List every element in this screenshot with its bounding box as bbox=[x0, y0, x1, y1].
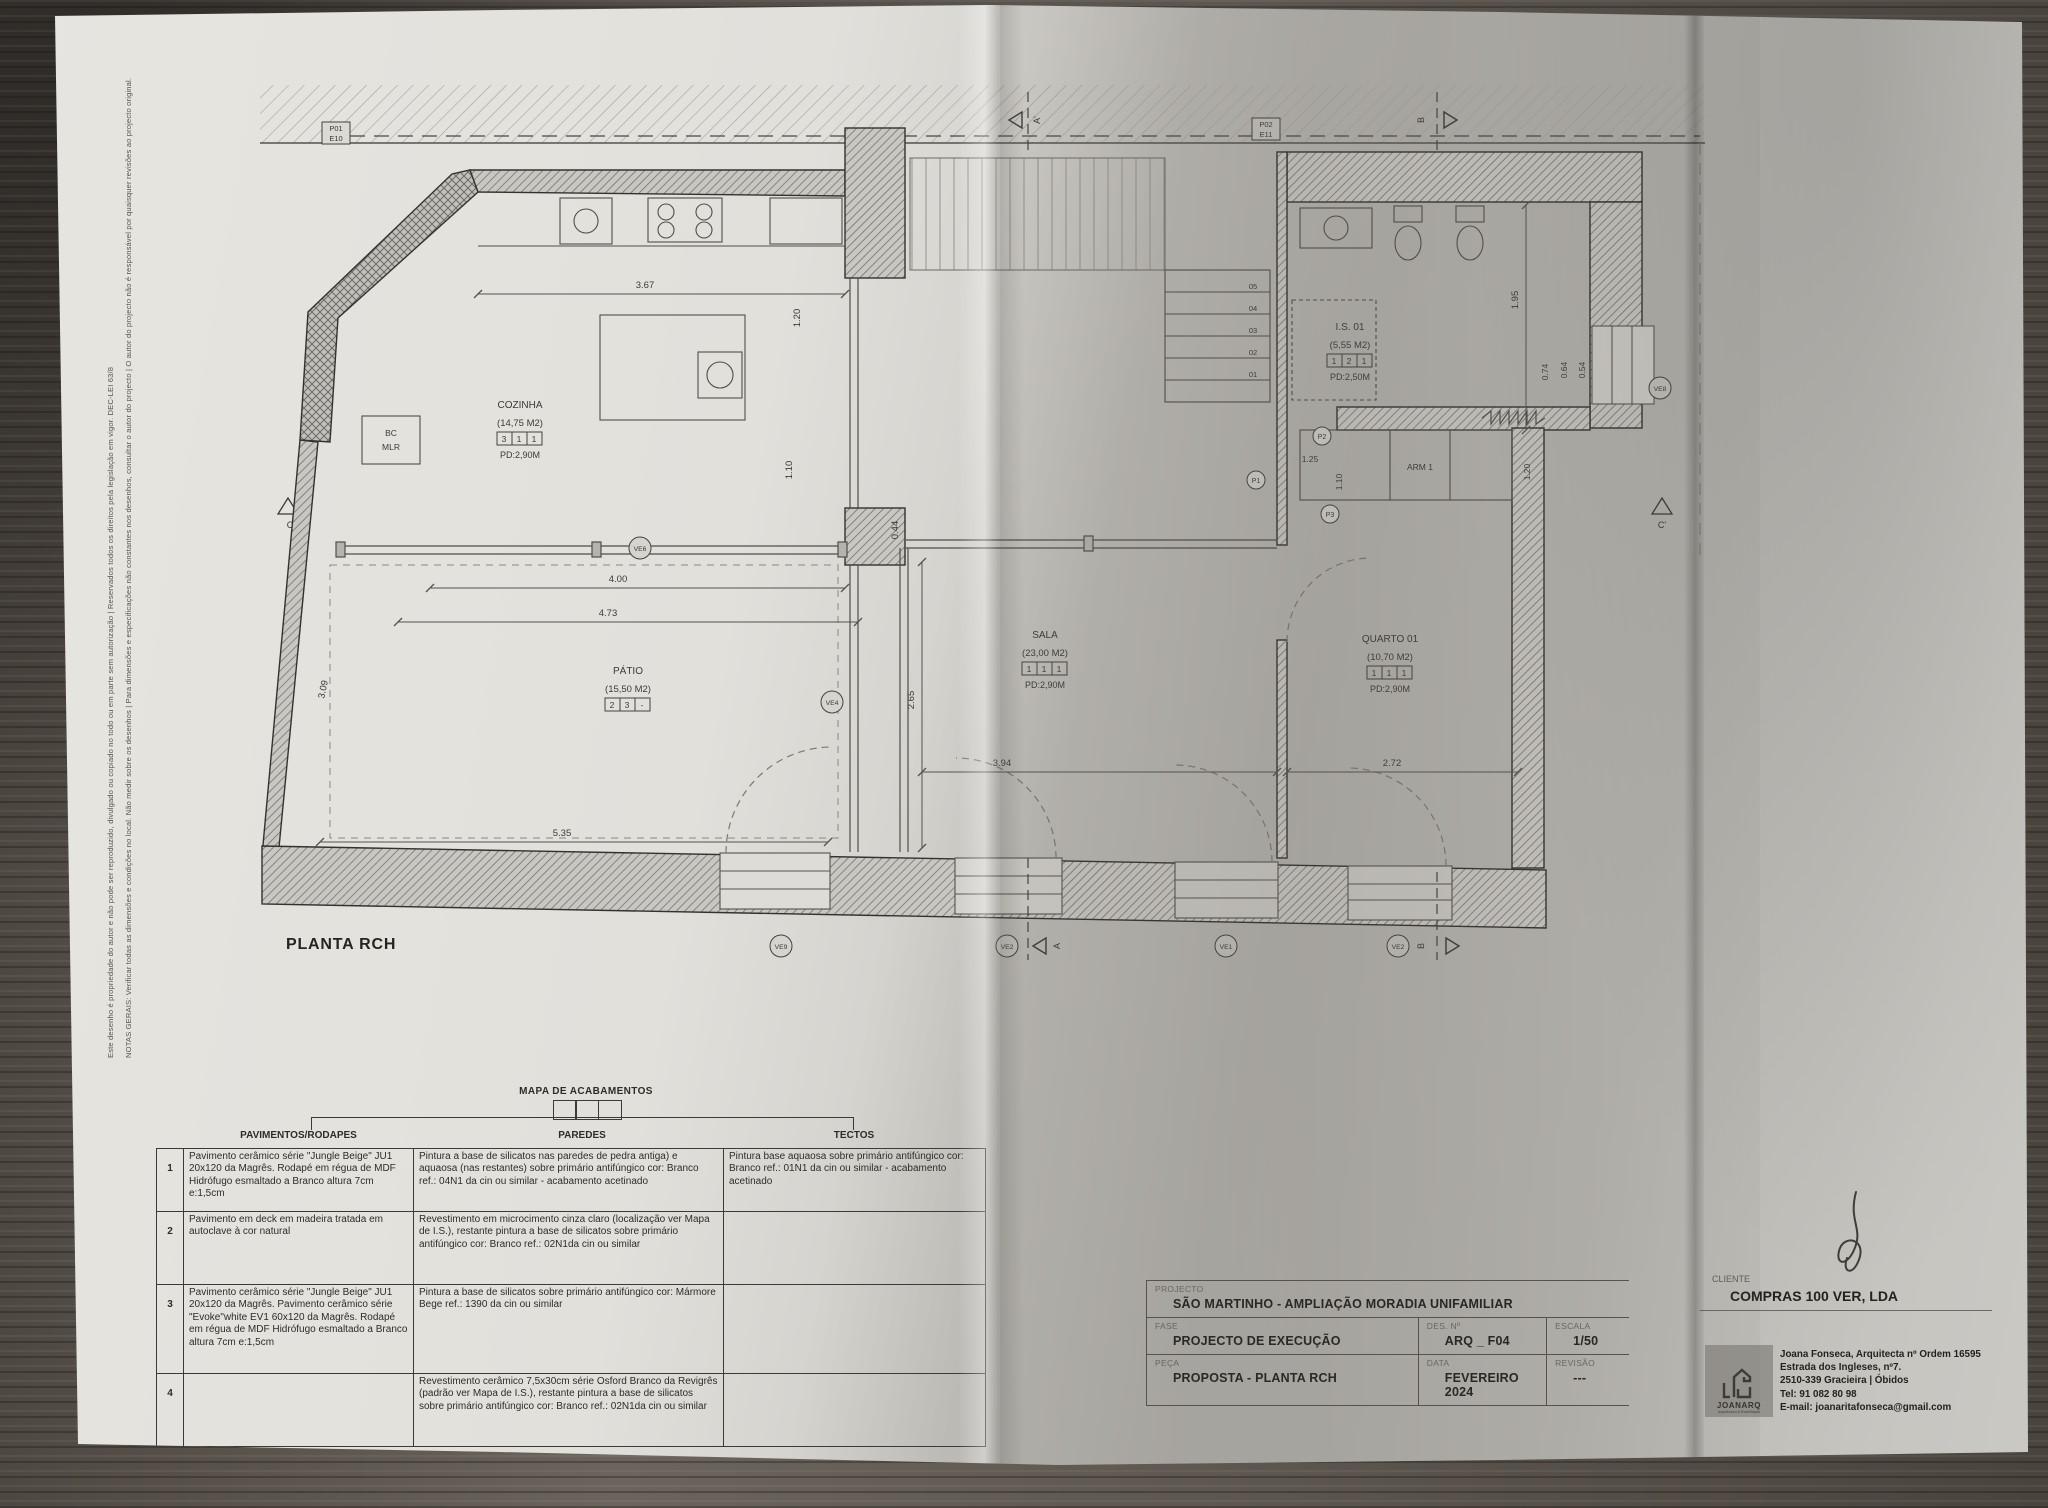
svg-text:P02: P02 bbox=[1259, 120, 1272, 129]
svg-text:1.10: 1.10 bbox=[1334, 473, 1344, 490]
room-label-quarto: QUARTO 01 (10,70 M2) 1 1 1 PD:2,90M bbox=[1362, 634, 1419, 694]
projecto-label: PROJECTO bbox=[1155, 1284, 1623, 1294]
svg-text:VE1: VE1 bbox=[1220, 944, 1233, 951]
row-num: 4 bbox=[157, 1374, 184, 1446]
general-notes-line2: Este desenho é propriedade do autor e nã… bbox=[106, 367, 115, 1058]
des-label: DES. Nº bbox=[1427, 1321, 1540, 1331]
svg-text:A: A bbox=[1052, 943, 1062, 949]
svg-text:VE8: VE8 bbox=[1654, 386, 1667, 393]
cell-paredes: Pintura a base de silicatos sobre primár… bbox=[414, 1285, 724, 1374]
svg-text:1.95: 1.95 bbox=[1510, 291, 1521, 310]
terrace-deck bbox=[910, 158, 1165, 270]
escala-value: 1/50 bbox=[1573, 1334, 1623, 1348]
contact-line: Tel: 91 082 80 98 bbox=[1780, 1388, 1981, 1401]
cell-paredes: Revestimento cerâmico 7,5x30cm série Osf… bbox=[414, 1374, 724, 1446]
closet-arm1 bbox=[1300, 430, 1512, 500]
finishes-headers: PAVIMENTOS/RODAPES PAREDES TECTOS bbox=[156, 1130, 986, 1141]
revisao-value: --- bbox=[1573, 1371, 1623, 1385]
cliente-name: COMPRAS 100 VER, LDA bbox=[1730, 1288, 2020, 1304]
general-notes-line1: NOTAS GERAIS: Verificar todas as dimensõ… bbox=[124, 78, 133, 1058]
svg-text:VE2: VE2 bbox=[1001, 944, 1014, 951]
svg-text:1: 1 bbox=[1042, 664, 1047, 674]
peca-label: PEÇA bbox=[1155, 1358, 1412, 1368]
fase-value: PROJECTO DE EXECUÇÃO bbox=[1173, 1334, 1412, 1348]
svg-text:SALA: SALA bbox=[1032, 630, 1058, 641]
contact-line: 2510-339 Gracieira | Óbidos bbox=[1780, 1374, 1981, 1387]
svg-text:PD:2,90M: PD:2,90M bbox=[1025, 680, 1065, 690]
data-label: DATA bbox=[1427, 1358, 1540, 1368]
svg-text:1: 1 bbox=[1387, 668, 1392, 678]
architect-contact: Joana Fonseca, Arquitecta nº Ordem 16595… bbox=[1780, 1348, 1981, 1414]
svg-text:1: 1 bbox=[532, 434, 537, 444]
svg-text:B: B bbox=[1416, 943, 1426, 949]
header-tectos: TECTOS bbox=[723, 1130, 985, 1141]
pillar-refs: P1 P2 P3 bbox=[1247, 427, 1339, 523]
svg-text:01: 01 bbox=[1249, 370, 1257, 379]
cell-tectos bbox=[724, 1374, 985, 1446]
svg-text:(10,70 M2): (10,70 M2) bbox=[1367, 652, 1413, 663]
svg-text:COZINHA: COZINHA bbox=[498, 400, 543, 411]
svg-text:E11: E11 bbox=[1260, 130, 1273, 139]
svg-text:(5,55 M2): (5,55 M2) bbox=[1330, 340, 1371, 351]
joanarq-logo: JOANARQ Arquitectura & Reabilitação bbox=[1705, 1345, 1773, 1417]
svg-text:PD:2,90M: PD:2,90M bbox=[1370, 684, 1410, 694]
logo-subtitle: Arquitectura & Reabilitação bbox=[1718, 1410, 1760, 1414]
svg-text:1.25: 1.25 bbox=[1302, 454, 1319, 464]
svg-text:VE9: VE9 bbox=[775, 944, 788, 951]
cell-tectos bbox=[724, 1285, 985, 1374]
stair-numbers: 05 04 03 02 01 bbox=[1249, 282, 1257, 379]
svg-text:(15,50 M2): (15,50 M2) bbox=[605, 684, 651, 695]
wall-tag-p02: P02 E11 bbox=[1252, 118, 1280, 140]
room-label-cozinha: COZINHA (14,75 M2) 3 1 1 PD:2,90M bbox=[497, 400, 543, 460]
svg-text:(23,00 M2): (23,00 M2) bbox=[1022, 648, 1068, 659]
svg-text:P01: P01 bbox=[329, 124, 342, 133]
svg-text:MLR: MLR bbox=[382, 442, 400, 452]
peca-value: PROPOSTA - PLANTA RCH bbox=[1173, 1371, 1412, 1385]
header-paredes: PAREDES bbox=[441, 1130, 723, 1141]
svg-text:VE4: VE4 bbox=[826, 700, 839, 707]
svg-text:1: 1 bbox=[517, 434, 522, 444]
svg-text:3: 3 bbox=[625, 700, 630, 710]
cell-paredes: Pintura a base de silicatos nas paredes … bbox=[414, 1149, 724, 1212]
client-block: CLIENTE COMPRAS 100 VER, LDA JOANARQ Arq… bbox=[1700, 1274, 2020, 1311]
cell-pavimentos bbox=[184, 1374, 414, 1446]
data-value: FEVEREIRO 2024 bbox=[1445, 1371, 1540, 1399]
cell-pavimentos: Pavimento cerâmico série "Jungle Beige" … bbox=[184, 1149, 414, 1212]
window-niche bbox=[1592, 326, 1654, 404]
svg-text:03: 03 bbox=[1249, 326, 1257, 335]
bracket-drop-right bbox=[853, 1117, 854, 1130]
svg-text:QUARTO 01: QUARTO 01 bbox=[1362, 634, 1419, 645]
svg-text:3.67: 3.67 bbox=[636, 280, 655, 291]
room-label-is01: I.S. 01 (5,55 M2) 1 2 1 PD:2,50M bbox=[1327, 322, 1372, 382]
room-label-patio: PÁTIO (15,50 M2) 2 3 - bbox=[605, 664, 651, 711]
bracket-drop-left bbox=[311, 1117, 312, 1130]
svg-text:02: 02 bbox=[1249, 348, 1257, 357]
svg-text:05: 05 bbox=[1249, 282, 1257, 291]
room-label-sala: SALA (23,00 M2) 1 1 1 PD:2,90M bbox=[1022, 630, 1068, 690]
escala-label: ESCALA bbox=[1555, 1321, 1623, 1331]
svg-text:1: 1 bbox=[1402, 668, 1407, 678]
svg-text:3.94: 3.94 bbox=[993, 758, 1012, 769]
svg-text:1: 1 bbox=[1362, 356, 1367, 366]
svg-text:2: 2 bbox=[1347, 356, 1352, 366]
svg-text:1.10: 1.10 bbox=[784, 461, 795, 480]
revisao-label: REVISÃO bbox=[1555, 1358, 1623, 1368]
svg-text:1.20: 1.20 bbox=[1522, 463, 1532, 480]
svg-text:2: 2 bbox=[610, 700, 615, 710]
svg-text:2.72: 2.72 bbox=[1383, 758, 1402, 769]
svg-text:1: 1 bbox=[1027, 664, 1032, 674]
svg-text:C': C' bbox=[1658, 520, 1666, 530]
svg-text:1: 1 bbox=[1332, 356, 1337, 366]
bc-mlr-label: BC MLR bbox=[382, 428, 400, 452]
bathroom-fixtures bbox=[1292, 206, 1545, 424]
svg-text:1: 1 bbox=[1057, 664, 1062, 674]
bracket-line bbox=[311, 1117, 854, 1118]
neighbour-buildings-hatch bbox=[260, 85, 1705, 143]
svg-text:(14,75 M2): (14,75 M2) bbox=[497, 418, 543, 429]
cell-paredes: Revestimento em microcimento cinza claro… bbox=[414, 1212, 724, 1285]
svg-text:PD:2,50M: PD:2,50M bbox=[1330, 372, 1370, 382]
svg-text:P1: P1 bbox=[1252, 478, 1261, 485]
svg-text:E10: E10 bbox=[329, 134, 342, 143]
titleblock-row-peca: PEÇA PROPOSTA - PLANTA RCH DATA FEVEREIR… bbox=[1147, 1355, 1629, 1406]
finishes-grid: 1 Pavimento cerâmico série "Jungle Beige… bbox=[156, 1148, 986, 1447]
svg-text:I.S. 01: I.S. 01 bbox=[1336, 322, 1365, 333]
row-num: 2 bbox=[157, 1212, 184, 1285]
projecto-value: SÃO MARTINHO - AMPLIAÇÃO MORADIA UNIFAMI… bbox=[1173, 1297, 1623, 1311]
svg-text:0.44: 0.44 bbox=[890, 521, 901, 540]
fase-label: FASE bbox=[1155, 1321, 1412, 1331]
cell-tectos: Pintura base aquaosa sobre primário anti… bbox=[724, 1149, 985, 1212]
cell-pavimentos: Pavimento cerâmico série "Jungle Beige" … bbox=[184, 1285, 414, 1374]
dimension-lines bbox=[316, 201, 1530, 852]
svg-text:4.00: 4.00 bbox=[609, 574, 628, 585]
svg-text:04: 04 bbox=[1249, 304, 1257, 313]
cell-pavimentos: Pavimento em deck em madeira tratada em … bbox=[184, 1212, 414, 1285]
logo-wordmark: JOANARQ bbox=[1717, 1401, 1761, 1410]
svg-text:1.20: 1.20 bbox=[792, 309, 803, 328]
svg-text:P2: P2 bbox=[1318, 434, 1327, 441]
dimension-labels: 3.67 1.20 1.10 4.00 4.73 3.09 5.35 2.65 … bbox=[316, 280, 1587, 839]
svg-text:PÁTIO: PÁTIO bbox=[613, 664, 643, 677]
svg-text:1: 1 bbox=[1372, 668, 1377, 678]
arm1-label: ARM 1 bbox=[1407, 462, 1433, 472]
svg-text:5.35: 5.35 bbox=[553, 828, 572, 839]
divider bbox=[1700, 1310, 1992, 1311]
plan-caption: PLANTA RCH bbox=[286, 936, 396, 954]
svg-text:P3: P3 bbox=[1326, 512, 1335, 519]
svg-text:BC: BC bbox=[385, 428, 397, 438]
svg-text:-: - bbox=[641, 700, 644, 710]
svg-text:2.65: 2.65 bbox=[906, 691, 917, 710]
svg-text:PD:2,90M: PD:2,90M bbox=[500, 450, 540, 460]
row-num: 1 bbox=[157, 1149, 184, 1212]
svg-text:3: 3 bbox=[502, 434, 507, 444]
svg-text:4.73: 4.73 bbox=[599, 608, 618, 619]
contact-line: E-mail: joanaritafonseca@gmail.com bbox=[1780, 1401, 1981, 1414]
svg-text:VE2: VE2 bbox=[1392, 944, 1405, 951]
kitchen-fixtures bbox=[362, 198, 845, 464]
wall-tag-p01: P01 E10 bbox=[322, 122, 350, 144]
signature bbox=[1838, 1192, 1860, 1271]
row-num: 3 bbox=[157, 1285, 184, 1374]
des-value: ARQ _ F04 bbox=[1445, 1334, 1540, 1348]
section-mark-c-right: C' bbox=[1652, 498, 1672, 530]
title-block: PROJECTO SÃO MARTINHO - AMPLIAÇÃO MORADI… bbox=[1146, 1280, 1629, 1406]
cliente-label: CLIENTE bbox=[1712, 1274, 2020, 1284]
cell-tectos bbox=[724, 1212, 985, 1285]
titleblock-row-projecto: PROJECTO SÃO MARTINHO - AMPLIAÇÃO MORADI… bbox=[1147, 1281, 1629, 1318]
titleblock-row-fase: FASE PROJECTO DE EXECUÇÃO DES. Nº ARQ _ … bbox=[1147, 1318, 1629, 1355]
svg-text:B: B bbox=[1416, 117, 1426, 123]
svg-text:3.09: 3.09 bbox=[316, 679, 331, 699]
svg-text:0.74: 0.74 bbox=[1540, 363, 1550, 380]
photographed-floor-plan: { "notes": { "line1": "NOTAS GERAIS: Ver… bbox=[0, 0, 2048, 1508]
drawing-sheet: P01 E10 P02 E11 A' B C C' bbox=[0, 0, 2048, 1508]
contact-line: Joana Fonseca, Arquitecta nº Ordem 16595 bbox=[1780, 1348, 1981, 1361]
house-icon bbox=[1722, 1367, 1756, 1401]
svg-text:A': A' bbox=[1032, 116, 1042, 124]
header-pavimentos: PAVIMENTOS/RODAPES bbox=[156, 1130, 441, 1141]
finishes-map-title: MAPA DE ACABAMENTOS bbox=[486, 1086, 686, 1097]
svg-text:0.54: 0.54 bbox=[1577, 361, 1587, 378]
svg-text:VE6: VE6 bbox=[634, 546, 647, 553]
contact-line: Estrada dos Ingleses, nº7. bbox=[1780, 1361, 1981, 1374]
svg-text:0.64: 0.64 bbox=[1559, 361, 1569, 378]
